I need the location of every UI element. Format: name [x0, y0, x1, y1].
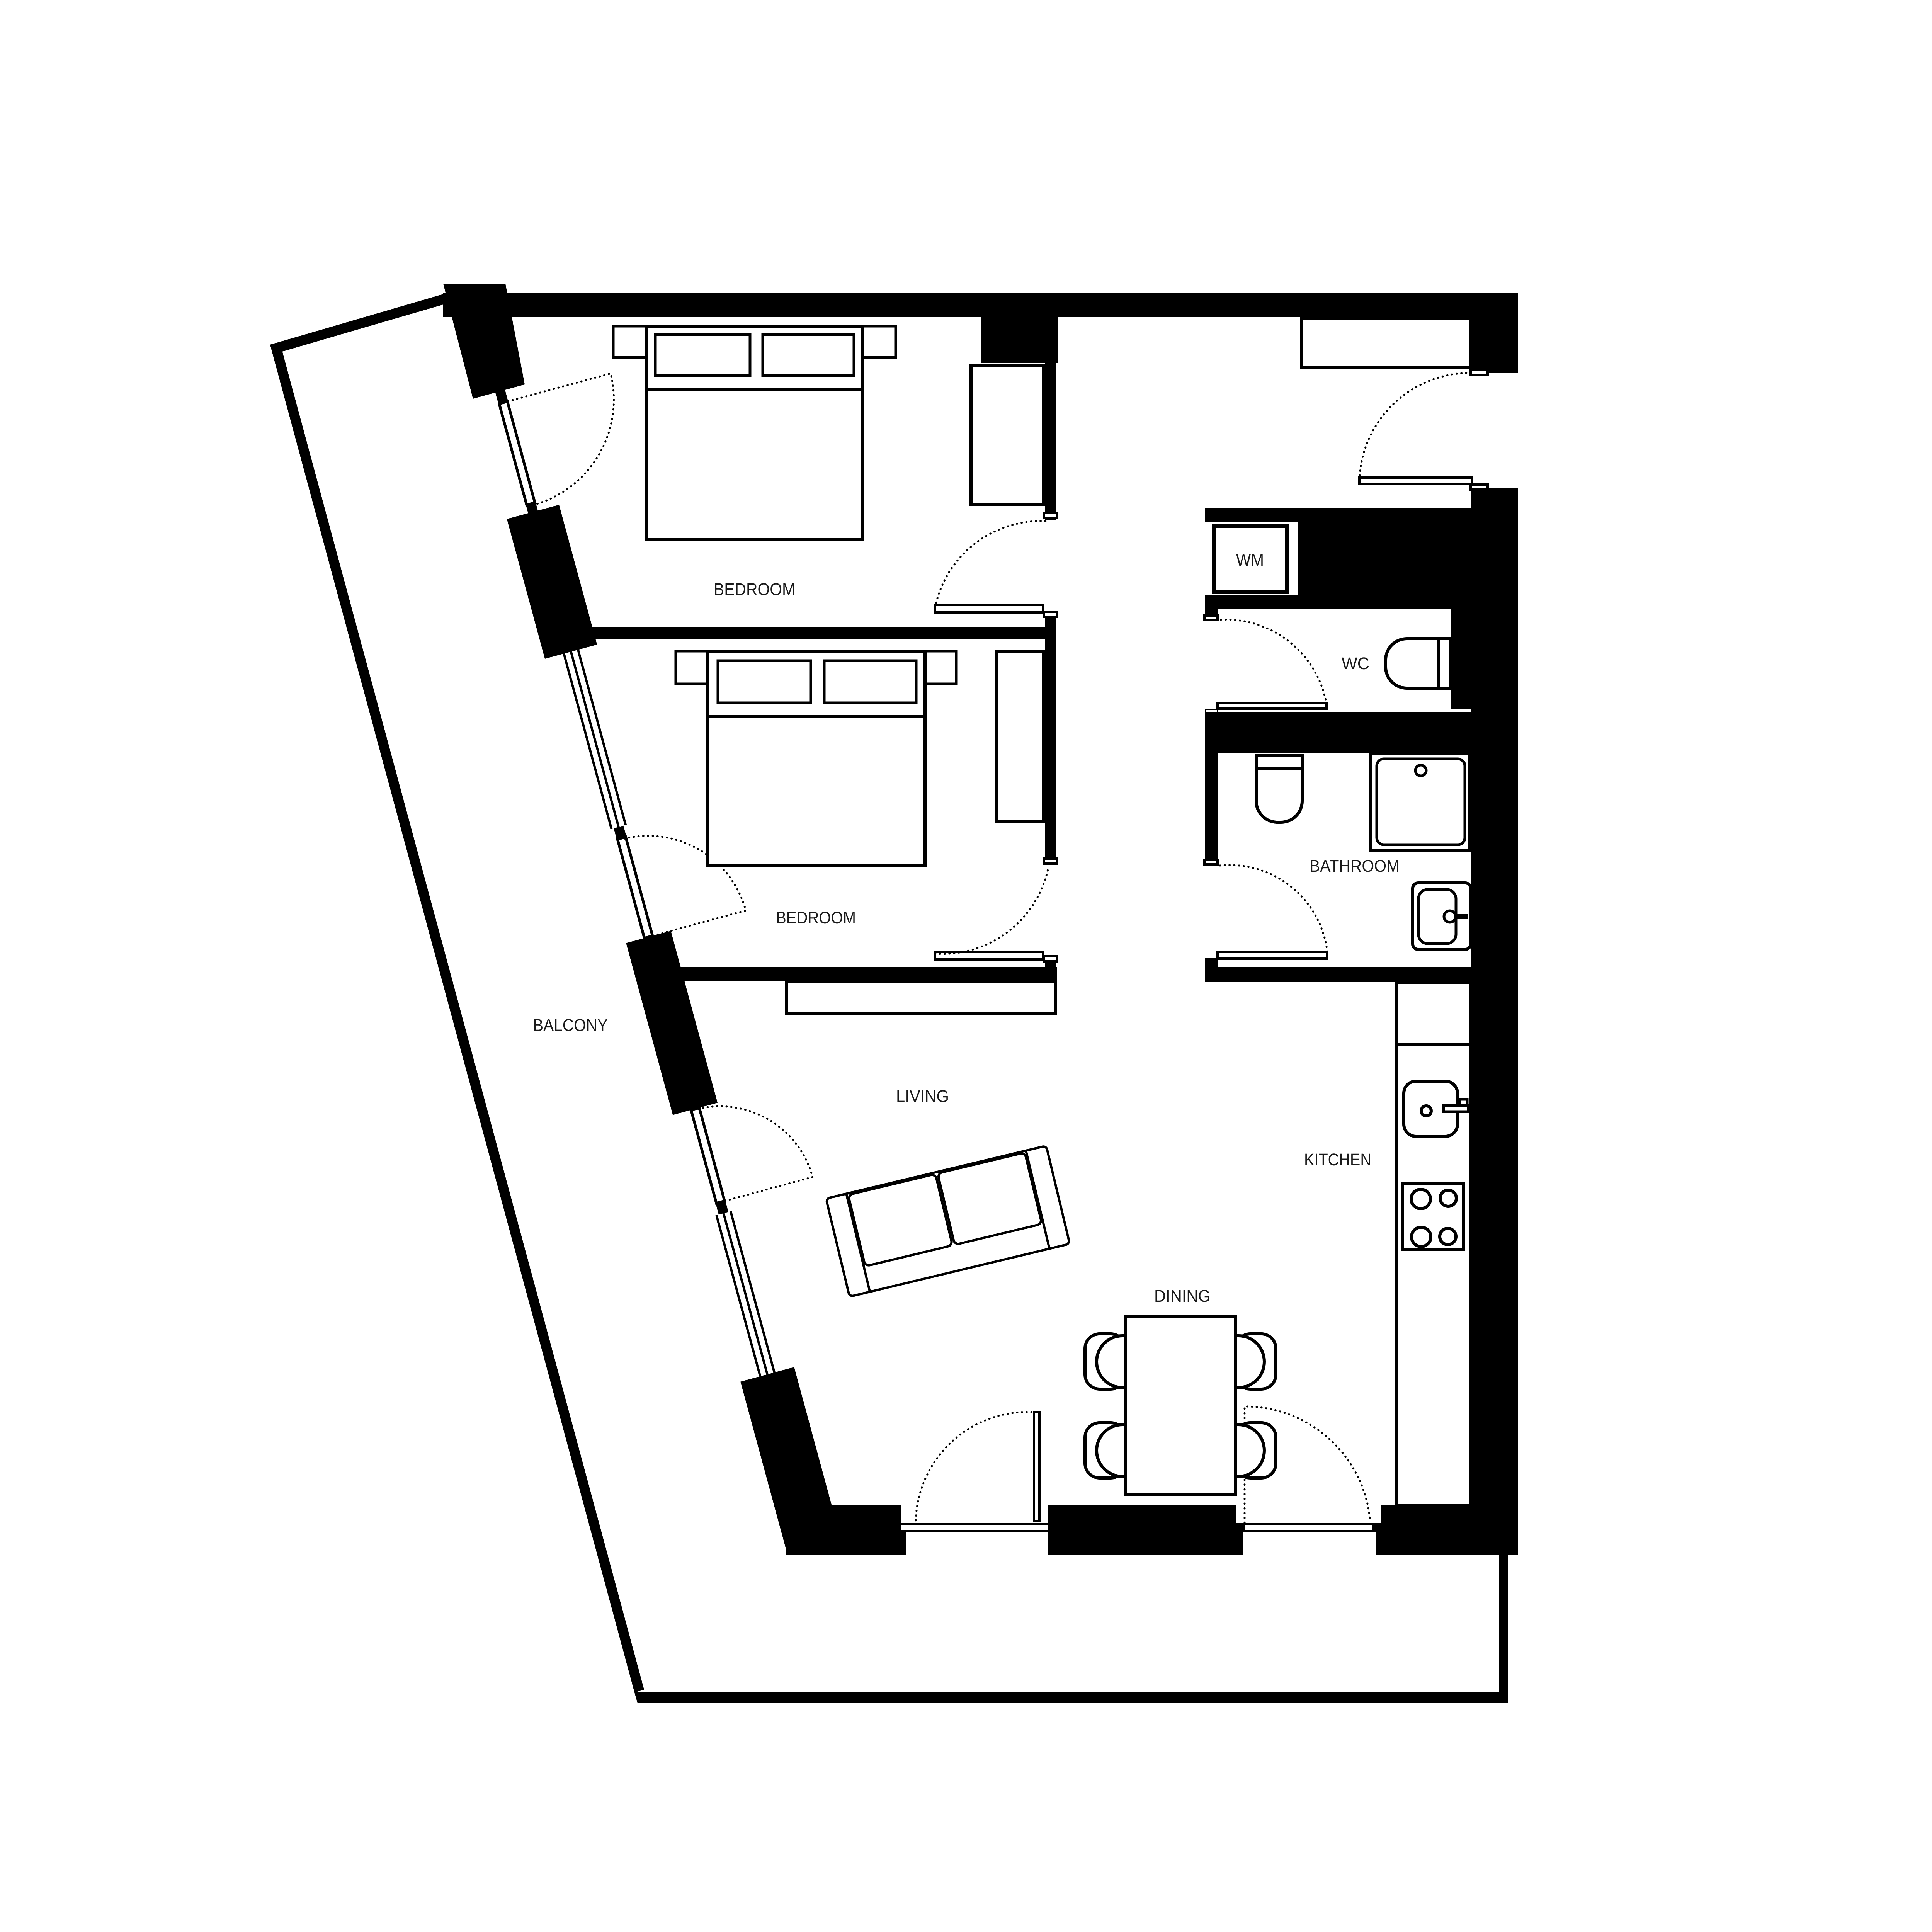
svg-text:BEDROOM: BEDROOM	[714, 580, 795, 599]
svg-text:KITCHEN: KITCHEN	[1304, 1150, 1371, 1169]
svg-text:BALCONY: BALCONY	[533, 1016, 608, 1035]
svg-text:DINING: DINING	[1154, 1287, 1211, 1306]
svg-text:LIVING: LIVING	[896, 1087, 949, 1106]
svg-text:BEDROOM: BEDROOM	[776, 908, 856, 927]
svg-text:WM: WM	[1236, 551, 1264, 570]
svg-text:WC: WC	[1342, 654, 1369, 673]
svg-text:BATHROOM: BATHROOM	[1310, 857, 1400, 876]
